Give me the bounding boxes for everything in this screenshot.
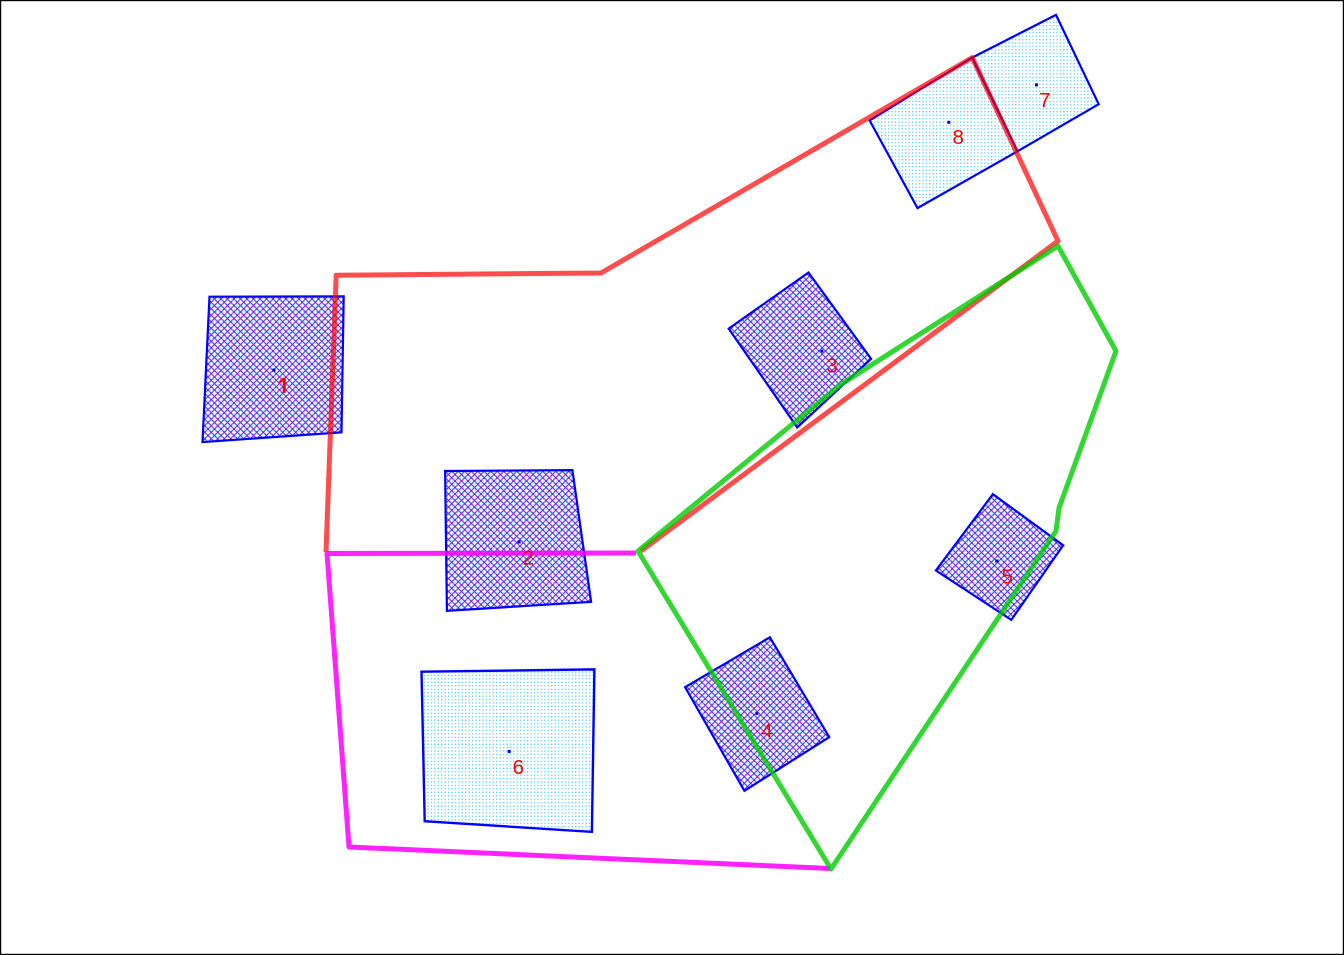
svg-text:2: 2 — [522, 547, 533, 570]
svg-text:7: 7 — [1039, 89, 1050, 112]
svg-text:6: 6 — [513, 756, 524, 779]
svg-text:5: 5 — [1001, 565, 1012, 588]
svg-text:8: 8 — [952, 126, 963, 149]
svg-text:3: 3 — [826, 354, 837, 377]
svg-text:4: 4 — [761, 719, 772, 742]
